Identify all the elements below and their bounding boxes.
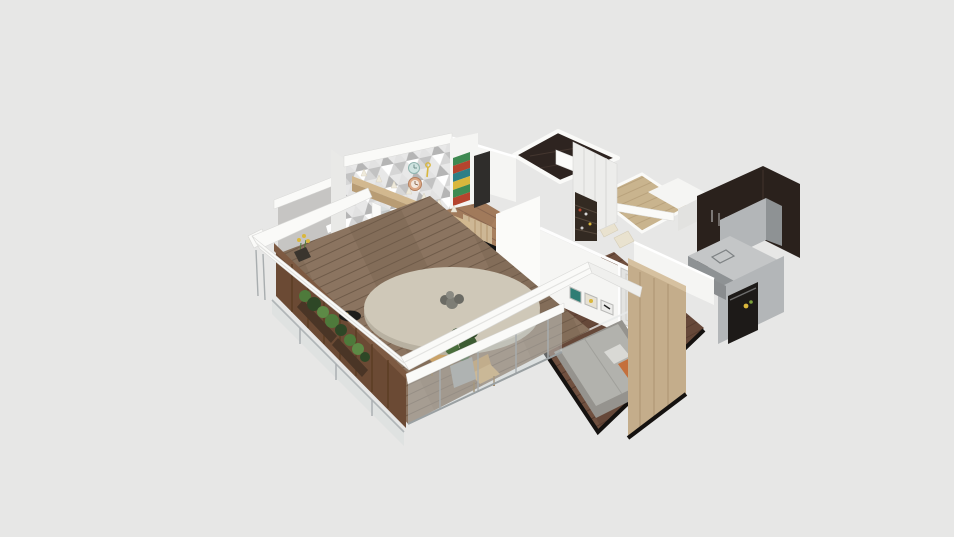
counter-item-green (749, 300, 753, 304)
floorplan-render (0, 0, 954, 537)
upper-cabinet-side (766, 198, 782, 246)
dark-doorway (474, 151, 490, 208)
striped-artwork (453, 152, 470, 206)
kitchen (688, 166, 800, 344)
render-viewport[interactable] (0, 0, 954, 537)
dining-chair (614, 231, 634, 248)
counter-item-yellow (744, 304, 749, 309)
